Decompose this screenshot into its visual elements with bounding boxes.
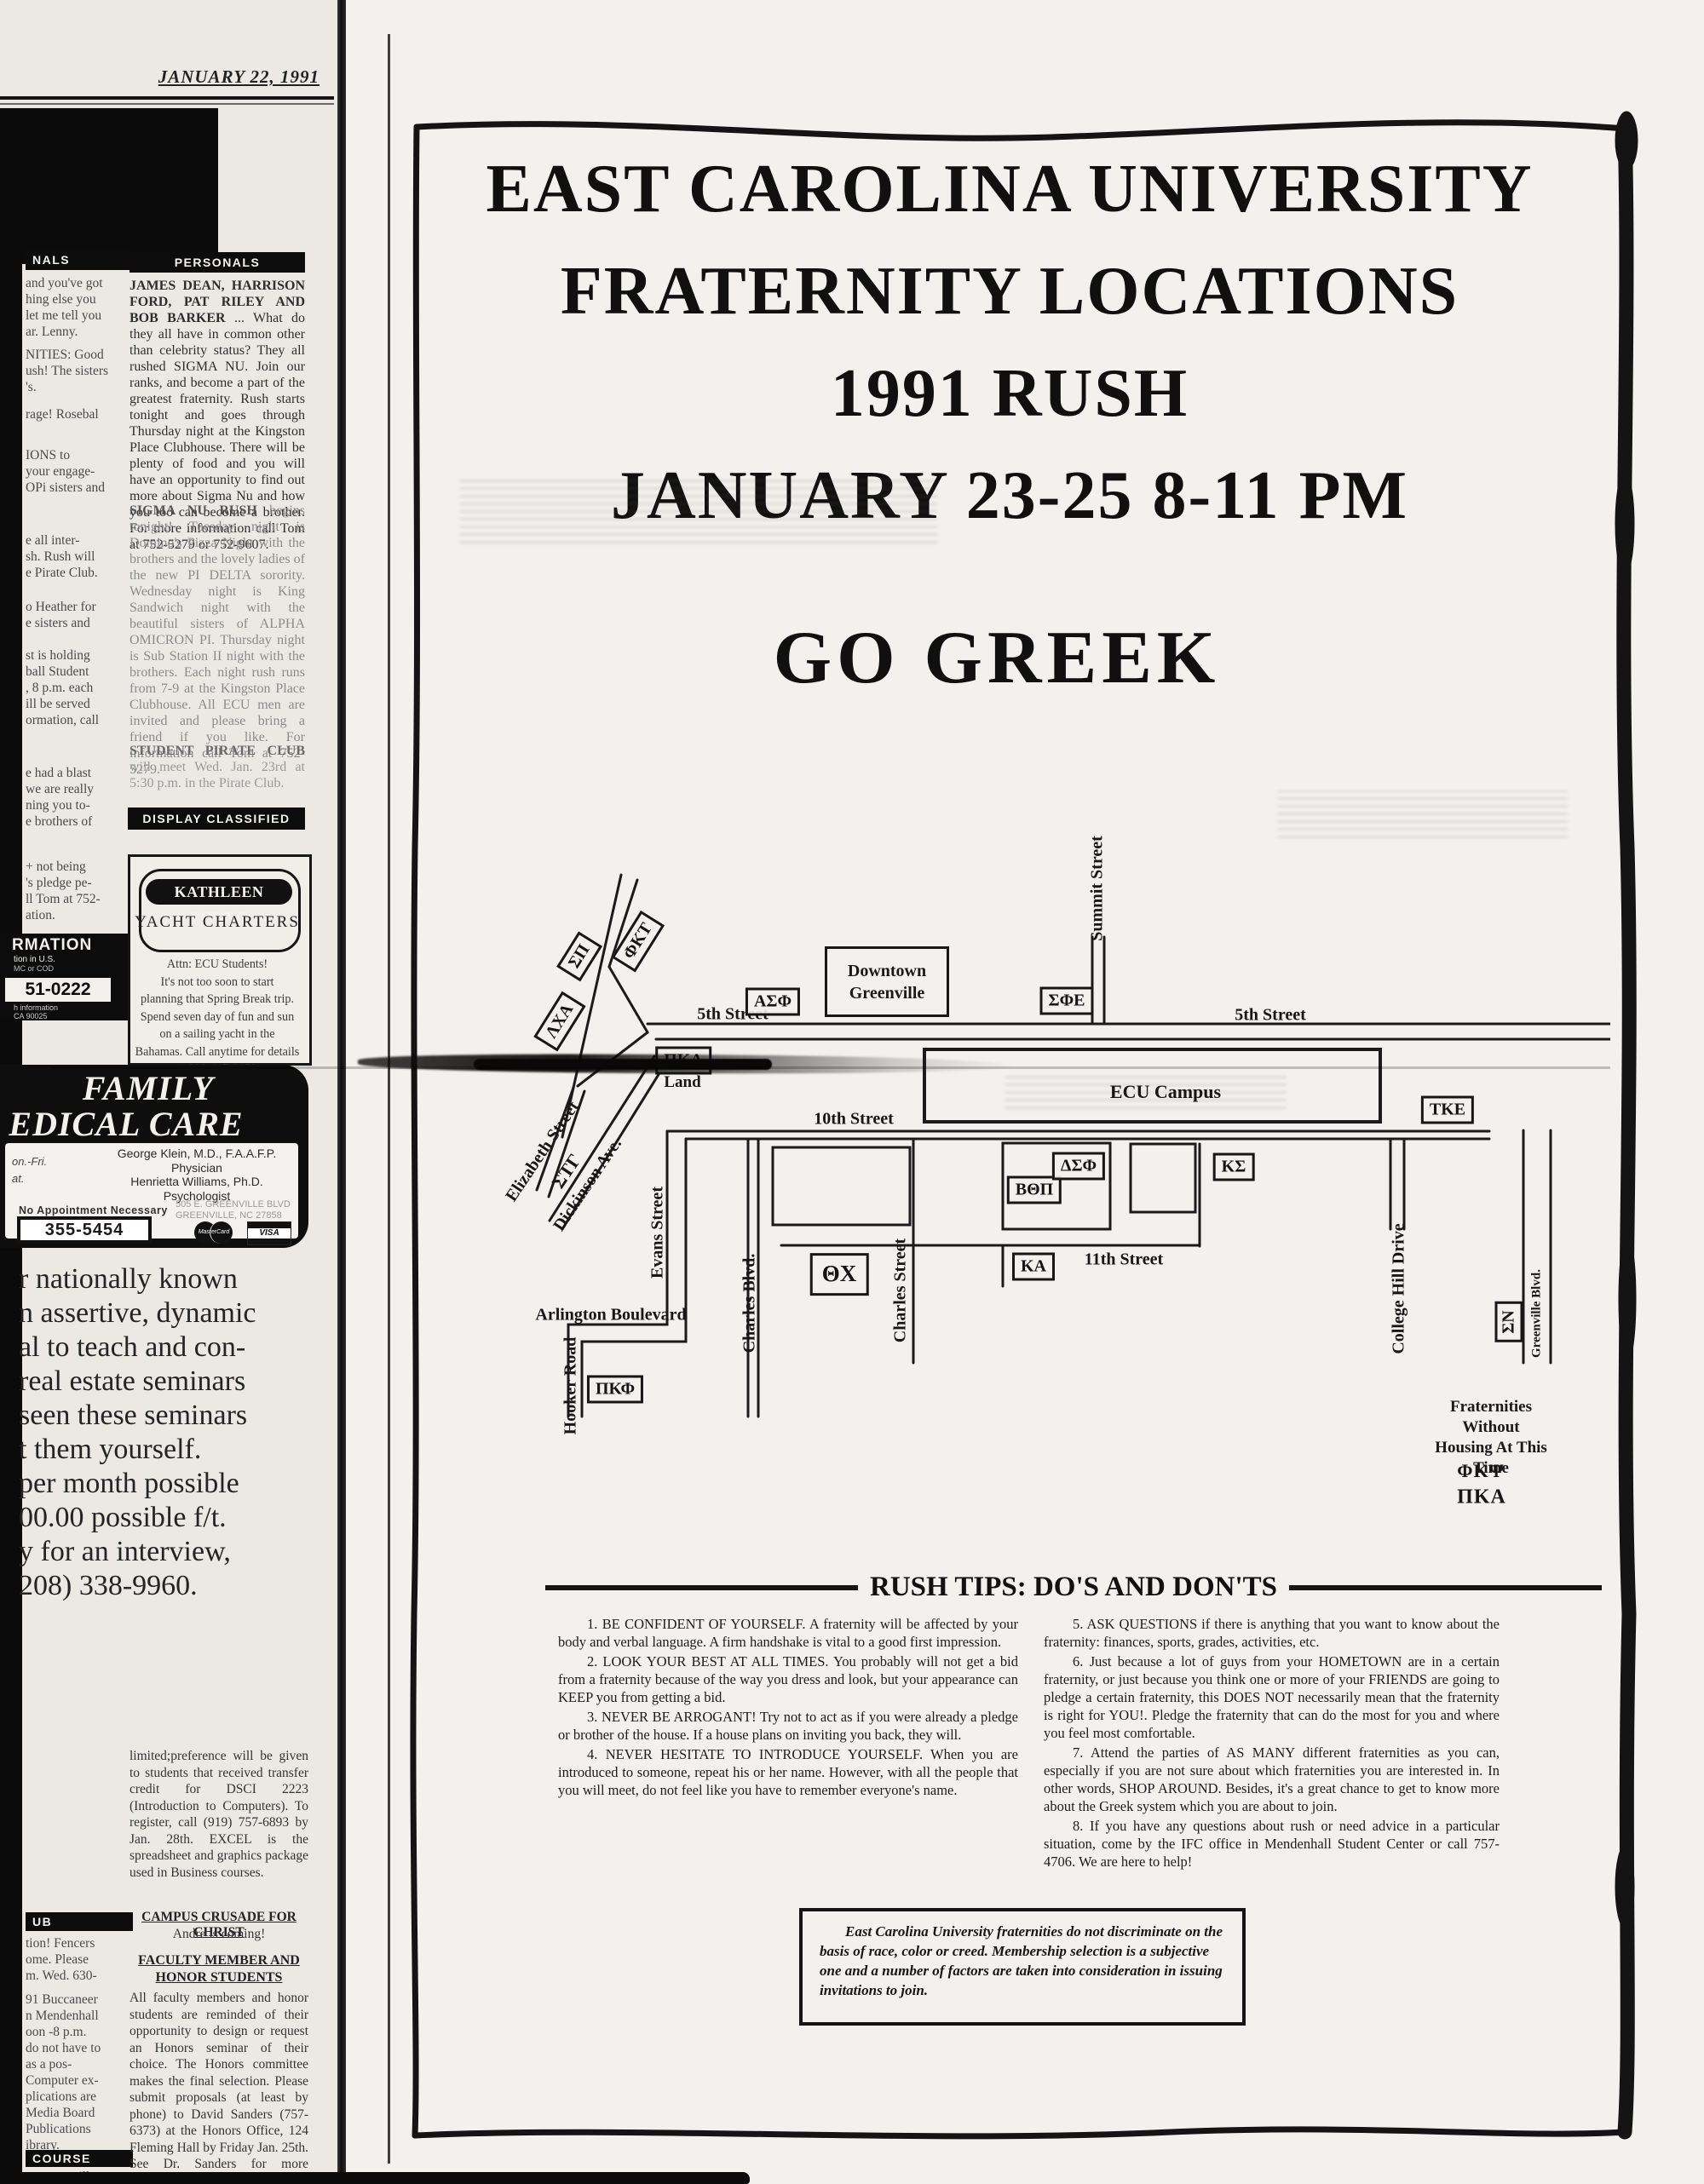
personals-ad-lead: SIGMA NU RUSH [130,503,257,518]
mastercard-label: MasterCard [195,1229,233,1235]
seminar-ad-fragment: r nationally known n assertive, dynamic … [19,1262,300,1603]
downtown-greenville-box: Downtown Greenville [825,946,949,1017]
downtown-greenville-label: Downtown Greenville [848,960,926,1004]
medical-staff: George Klein, M.D., F.A.A.F.P. Physician… [99,1147,295,1203]
title-rule-right [1289,1585,1602,1590]
bottom-section-header-fragment-2: COURSE [26,2150,133,2167]
campus-crusade-sub: Andre is coming! [130,1927,308,1942]
rush-tip: 6. Just because a lot of guys from your … [1044,1652,1500,1742]
personals-ad-sigma-nu-rush: SIGMA NU RUSH begins tonight! Tuesday ni… [130,503,305,778]
map-house-tke: TKE [1421,1096,1474,1124]
title-rule-left [545,1585,858,1590]
bottom-fragment: 91 Buccaneer n Mendenhall oon -8 p.m. do… [26,1991,126,2153]
headline-line-3: 1991 RUSH [409,342,1610,445]
newspaper-scan-page: JANUARY 22, 1991 NALS and you've got hin… [0,0,1704,2184]
medical-note: No Appointment Necessary [19,1204,168,1216]
visa-label: VISA [248,1228,291,1239]
bleed-artifact [1278,790,1568,838]
yacht-charters-ad: KATHLEEN YOUNG YACHT CHARTERS Attn: ECU … [128,854,312,1066]
medical-phone: 355-5454 [17,1216,152,1244]
info-ad-block: RMATION tion in U.S. MC or COD 51-0222 h… [0,934,128,1020]
info-ad-line: MC or COD [0,964,128,973]
bottom-section-header-fragment: UB [26,1912,133,1931]
classified-fragment: and you've got hing else you let me tell… [26,275,126,340]
personals-ad-body: begins tonight! Tuesday night is Domino'… [130,503,305,777]
rush-tip: 2. LOOK YOUR BEST AT ALL TIMES. You prob… [558,1652,1018,1706]
rush-tips-title-row: RUSH TIPS: DO'S AND DON'TS [545,1572,1602,1603]
info-ad-line: h information [14,1003,58,1012]
info-ad-phone: 51-0222 [5,978,111,1002]
headline-line-2: FRATERNITY LOCATIONS [409,240,1610,342]
rush-tips-right-column: 5. ASK QUESTIONS if there is anything th… [1044,1615,1500,1872]
medical-title-1: FAMILY [0,1068,308,1108]
classified-fragment: + not being 's pledge pe- ll Tom at 752-… [26,859,126,923]
rush-tip: 5. ASK QUESTIONS if there is anything th… [1044,1615,1500,1651]
street-label-5th-right: 5th Street [1235,1006,1306,1026]
pka-land-label: Land [664,1073,700,1092]
fraternity-map: Downtown Greenville ECU Campus 5th Stree… [528,839,1610,1572]
map-house-delta-sigma-phi: ΔΣΦ [1052,1152,1105,1181]
personals-ad-body: will meet Wed. Jan. 23rd at 5:30 p.m. in… [130,760,305,790]
headline-line-1: EAST CAROLINA UNIVERSITY [409,138,1610,240]
medical-inner-panel: on.-Fri. at. George Klein, M.D., F.A.A.F… [5,1143,298,1239]
street-label-10th: 10th Street [814,1110,894,1129]
map-house-kappa-sigma: ΚΣ [1213,1153,1255,1181]
classified-fragment: NITIES: Good ush! The sisters 's. [26,347,126,395]
street-label-11th: 11th Street [1085,1250,1163,1270]
street-label-greenville-blvd: Greenville Blvd. [1530,1269,1545,1358]
personals-header: PERSONALS [130,252,305,273]
medical-address: 505 E. GREENVILLE BLVD GREENVILLE, NC 27… [176,1199,295,1221]
info-ad-title: RMATION [0,934,128,955]
excel-course-notice: limited;preference will be given to stud… [130,1748,308,1881]
classified-fragment: rage! Rosebal [26,406,126,422]
classified-fragment: o Heather for e sisters and [26,599,126,631]
street-label-college-hill: College Hill Drive [1390,1223,1409,1354]
masthead-rule-2 [0,103,334,105]
info-ad-line: tion in U.S. [0,955,128,964]
classified-fragment: e all inter- sh. Rush will e Pirate Club… [26,532,126,581]
go-greek-subhead: GO GREEK [409,615,1585,701]
map-house-pi-kappa-phi: ΠΚΦ [587,1376,643,1404]
rush-tips-left-column: 1. BE CONFIDENT OF YOURSELF. A fraternit… [558,1615,1018,1801]
fold-line [51,1066,1610,1069]
faculty-honors-body: All faculty members and honor students a… [130,1990,308,2184]
street-label-summit: Summit Street [1088,836,1108,941]
rush-tip: 3. NEVER BE ARROGANT! Try not to act as … [558,1708,1018,1744]
mastercard-logo-icon: MasterCard [194,1221,237,1244]
classified-fragment: st is holding ball Student , 8 p.m. each… [26,647,126,728]
no-housing-item-pi-kappa-alpha: ΠΚΑ [1457,1486,1506,1509]
display-classified-header: DISPLAY CLASSIFIED [128,808,305,830]
rush-tip: 7. Attend the parties of AS MANY differe… [1044,1744,1500,1815]
map-house-sigma-phi-epsilon: ΣΦΕ [1040,987,1094,1015]
info-ad-line: CA 90025 [14,1012,48,1020]
visa-logo-icon: VISA [247,1221,291,1245]
map-house-theta-chi: ΘΧ [810,1253,869,1296]
street-label-arlington: Arlington Boulevard [535,1306,686,1325]
masthead-rule [0,96,334,100]
page-gutter-shadow [337,0,346,2184]
scan-bottom-edge [0,2172,750,2184]
disclaimer-box: East Carolina University fraternities do… [799,1908,1246,2026]
yacht-body: Attn: ECU Students! It's not too soon to… [130,956,304,1078]
street-label-evans: Evans Street [648,1187,668,1279]
masthead-date: JANUARY 22, 1991 [0,66,319,88]
medical-hours-fragment-2: at. [12,1172,24,1185]
bleed-artifact [460,477,937,543]
map-house-alpha-sigma-phi: ΑΣΦ [745,988,800,1016]
ecu-campus-label: ECU Campus [1110,1081,1221,1103]
yacht-subtitle: YACHT CHARTERS [130,913,304,932]
map-house-kappa-alpha: ΚΑ [1012,1253,1055,1281]
classified-fragment: IONS to your engage- OPi sisters and [26,447,126,496]
rush-tip: 4. NEVER HESITATE TO INTRODUCE YOURSELF.… [558,1745,1018,1799]
medical-title-2: EDICAL CARE [0,1104,279,1144]
rush-tip: 1. BE CONFIDENT OF YOURSELF. A fraternit… [558,1615,1018,1651]
street-label-charles-blvd: Charles Blvd. [740,1254,760,1354]
faculty-honors-title: FACULTY MEMBER AND HONOR STUDENTS [130,1952,308,1986]
rush-tips-title: RUSH TIPS: DO'S AND DON'TS [870,1572,1277,1603]
yacht-name-pill: KATHLEEN YOUNG [146,879,292,905]
street-label-hooker: Hooker Road [561,1337,581,1435]
bottom-fragment: tion! Fencers ome. Please m. Wed. 630- [26,1935,126,1984]
family-medical-ad: FAMILY EDICAL CARE on.-Fri. at. George K… [0,1065,308,1248]
street-label-charles-st: Charles Street [891,1239,911,1342]
photo-block [0,108,218,264]
section-header-fragment: NALS [26,250,133,270]
medical-hours-fragment: on.-Fri. [12,1155,47,1168]
no-housing-item-phi-kappa-psi: ΦΚΨ [1457,1460,1505,1482]
classified-fragment: e had a blast we are really ning you to-… [26,765,126,830]
personals-ad-pirate-club: STUDENT PIRATE CLUB will meet Wed. Jan. … [130,743,305,791]
map-house-sigma-nu: ΣΝ [1495,1302,1523,1342]
rush-tip: 8. If you have any questions about rush … [1044,1817,1500,1871]
personals-ad-lead: STUDENT PIRATE CLUB [130,744,305,758]
